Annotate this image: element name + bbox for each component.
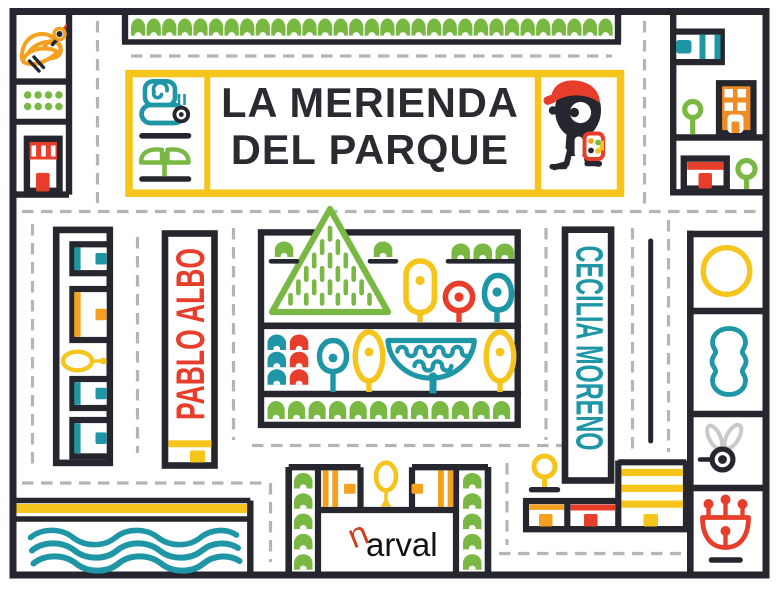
svg-text:PABLO ALBO: PABLO ALBO: [169, 248, 213, 420]
svg-text:arval: arval: [366, 526, 438, 563]
svg-text:CECILIA MORENO: CECILIA MORENO: [568, 246, 610, 451]
svg-text:DEL PARQUE: DEL PARQUE: [231, 126, 509, 173]
svg-text:LA MERIENDA: LA MERIENDA: [221, 79, 519, 126]
